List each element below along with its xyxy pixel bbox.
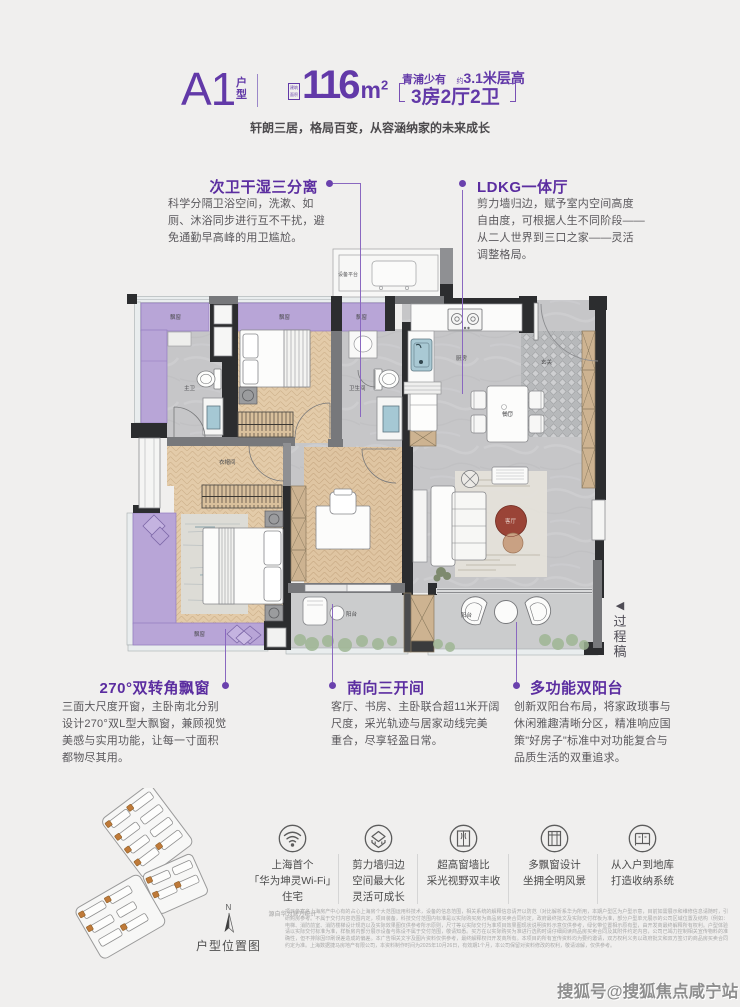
svg-text:客厅: 客厅 xyxy=(505,517,517,525)
svg-text:衣帽间: 衣帽间 xyxy=(219,458,236,466)
svg-text:餐厅: 餐厅 xyxy=(502,410,514,418)
svg-text:主卫: 主卫 xyxy=(184,384,196,392)
svg-text:阳台: 阳台 xyxy=(461,611,473,619)
svg-text:飘窗: 飘窗 xyxy=(170,313,182,321)
svg-text:飘窗: 飘窗 xyxy=(194,630,206,638)
svg-text:玄关: 玄关 xyxy=(541,358,553,366)
svg-text:飘窗: 飘窗 xyxy=(356,313,368,321)
svg-text:设备平台: 设备平台 xyxy=(338,271,358,278)
svg-text:卫生间: 卫生间 xyxy=(349,384,366,392)
svg-text:飘窗: 飘窗 xyxy=(279,313,291,321)
svg-text:N: N xyxy=(226,903,232,912)
svg-text:阳台: 阳台 xyxy=(346,610,358,618)
